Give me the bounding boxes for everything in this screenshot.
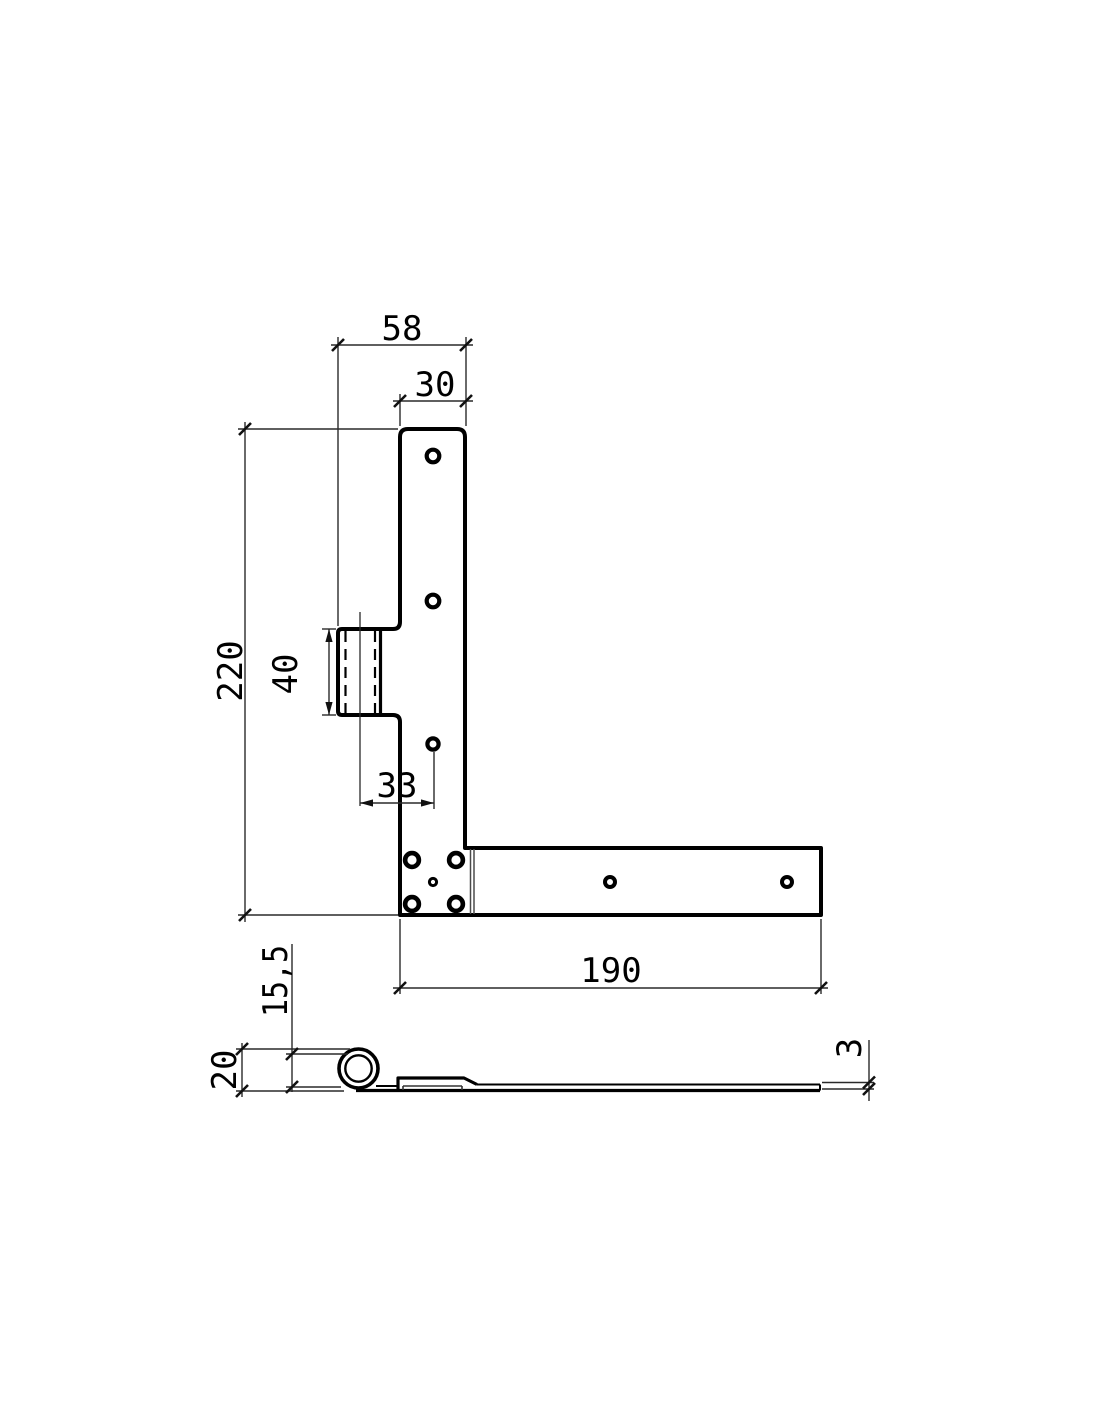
- arrowhead: [325, 629, 332, 642]
- hinge-technical-drawing: 220: [0, 0, 1100, 1422]
- corner-rivet-hole: [405, 897, 419, 911]
- corner-rivet-hole: [449, 853, 463, 867]
- dimension-30: 30: [393, 365, 473, 426]
- dim-40-label: 40: [266, 654, 306, 695]
- corner-rivet-hole: [449, 897, 463, 911]
- strap-profile: [356, 1078, 820, 1091]
- technical-drawing-page: 220: [0, 0, 1100, 1422]
- dimension-3: 3: [822, 1038, 875, 1101]
- hinge-outline: [338, 429, 821, 915]
- strap-hole-right: [782, 877, 792, 887]
- dimension-15-5: 15,5: [256, 944, 348, 1093]
- dimension-190: 190: [393, 919, 828, 994]
- dim-20-label: 20: [205, 1050, 245, 1091]
- dim-190-label: 190: [580, 951, 641, 991]
- arm-hole-top: [427, 450, 440, 463]
- dim-3-label: 3: [830, 1038, 870, 1058]
- dim-30-label: 30: [415, 365, 456, 405]
- arrowhead: [325, 702, 332, 715]
- side-view: 20 15,5 3: [205, 944, 875, 1101]
- dim-58-label: 58: [382, 309, 423, 349]
- corner-rivet-hole: [405, 853, 419, 867]
- dim-220-label: 220: [211, 640, 251, 701]
- dim-15-5-label: 15,5: [256, 945, 296, 1017]
- strap-hole-left: [605, 877, 615, 887]
- dimension-20: 20: [205, 1043, 350, 1097]
- top-view: 220: [211, 309, 828, 994]
- corner-center-hole: [429, 878, 436, 885]
- arm-hole-bottom: [427, 738, 438, 749]
- dim-33-label: 33: [377, 766, 418, 806]
- arrowhead: [360, 799, 373, 806]
- corner-plate-profile: [398, 1078, 477, 1090]
- dimension-40: 40: [266, 629, 336, 715]
- arm-hole-middle: [427, 595, 440, 608]
